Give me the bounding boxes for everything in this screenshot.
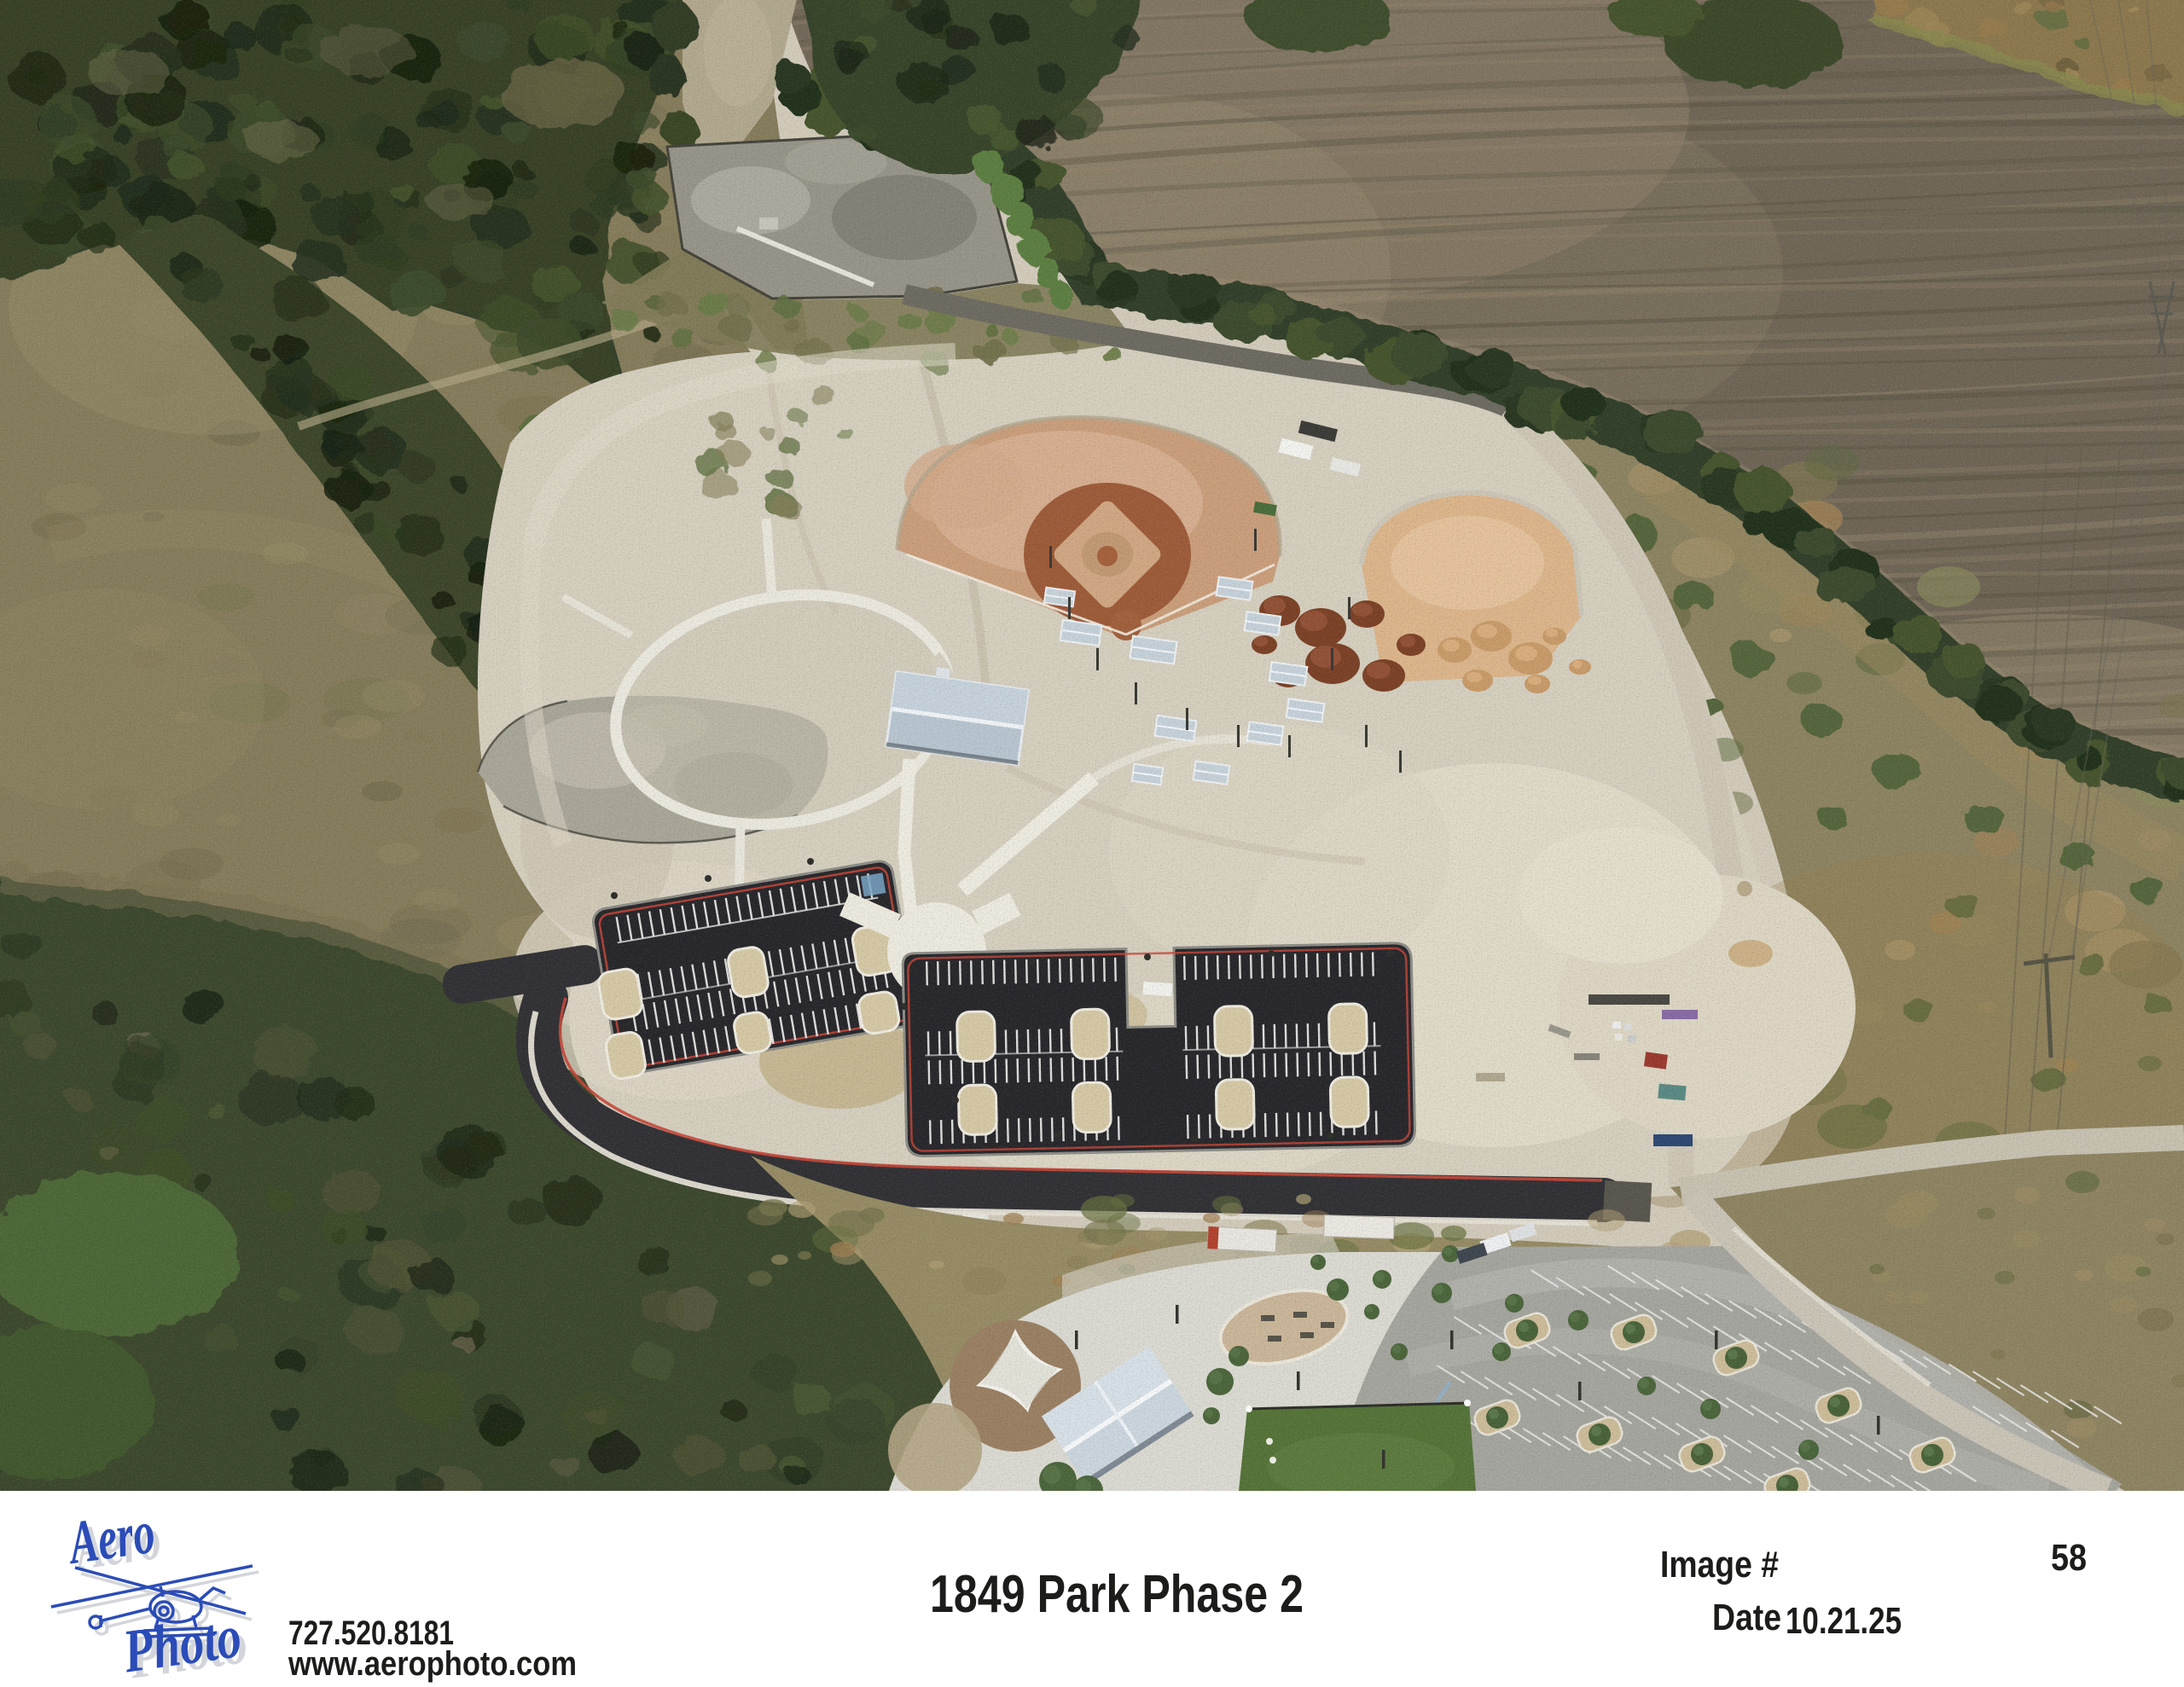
svg-text:10.21.25: 10.21.25 xyxy=(1786,1600,1902,1642)
svg-text:Image #: Image # xyxy=(1660,1544,1779,1586)
svg-text:Aero: Aero xyxy=(62,1498,159,1578)
svg-text:58: 58 xyxy=(2051,1537,2087,1579)
svg-text:1849 Park Phase 2: 1849 Park Phase 2 xyxy=(930,1565,1304,1624)
svg-text:Date: Date xyxy=(1712,1597,1781,1638)
svg-text:www.aerophoto.com: www.aerophoto.com xyxy=(288,1645,577,1683)
